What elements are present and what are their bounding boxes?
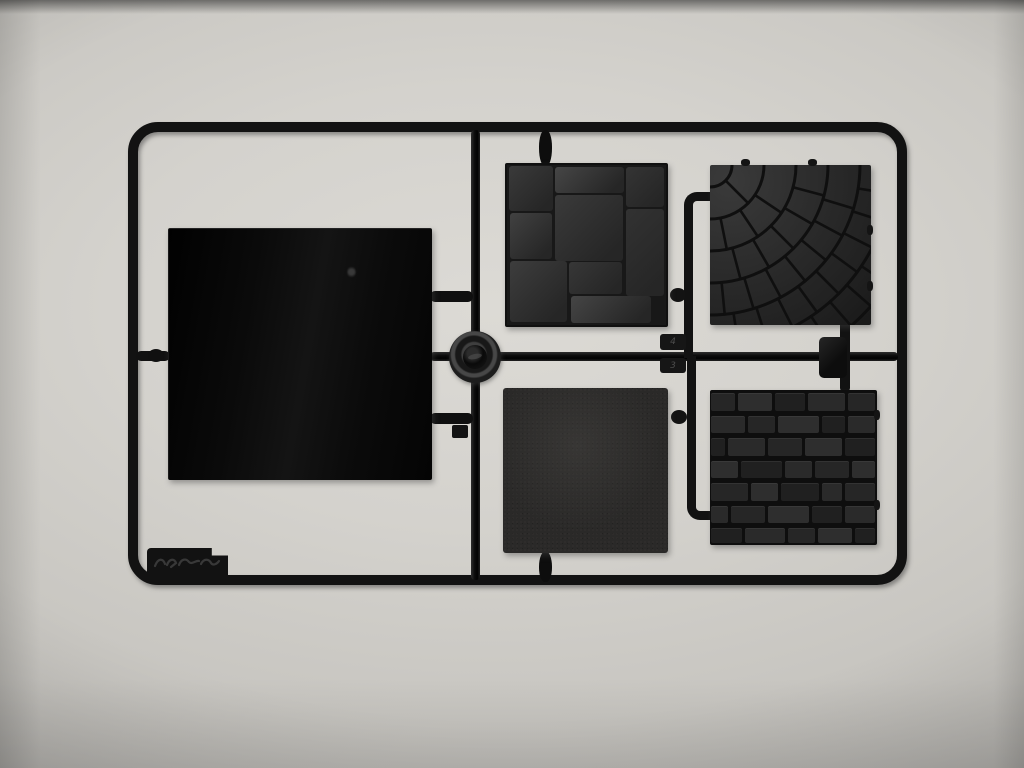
photo-background: 4 3 bbox=[0, 0, 1024, 768]
brick bbox=[711, 483, 748, 500]
brick bbox=[738, 393, 772, 410]
runner-small-tab bbox=[452, 425, 468, 438]
brick bbox=[711, 438, 725, 455]
flagstone-stone bbox=[509, 166, 553, 210]
tile-brick-wall bbox=[710, 390, 877, 545]
gate-left-bulge bbox=[148, 349, 164, 362]
brick bbox=[778, 416, 818, 432]
sprue-nub bbox=[867, 225, 873, 235]
brick bbox=[751, 483, 778, 500]
sprue-nub bbox=[808, 159, 817, 166]
gate-plain-tile-to-bottom-frame bbox=[539, 551, 552, 582]
brick bbox=[845, 506, 875, 522]
runner-knob-lower bbox=[671, 410, 687, 424]
cobblestone-pattern bbox=[710, 165, 871, 325]
brick bbox=[768, 438, 802, 455]
runner-right-connector-block bbox=[819, 337, 847, 378]
brick bbox=[852, 461, 876, 477]
brick bbox=[848, 393, 875, 410]
brick bbox=[768, 506, 808, 522]
tile-large-blank bbox=[168, 228, 432, 480]
brick bbox=[845, 438, 875, 455]
brick bbox=[812, 506, 842, 522]
brick bbox=[711, 393, 735, 410]
sprue-nub bbox=[741, 159, 750, 166]
brick bbox=[805, 438, 842, 455]
gate-top-frame-to-flagstone-tile bbox=[539, 130, 552, 167]
tile-flagstone bbox=[505, 163, 668, 327]
brick bbox=[741, 461, 781, 477]
flagstone-stone bbox=[555, 167, 624, 193]
brick bbox=[731, 506, 765, 522]
tile-cobblestone-fan bbox=[710, 165, 871, 325]
brick bbox=[818, 528, 852, 543]
mold-mark bbox=[347, 266, 356, 278]
gate-large-tile-upper bbox=[430, 291, 473, 302]
sprue-nub bbox=[874, 410, 880, 420]
sprue-hub-core bbox=[463, 345, 487, 369]
brick bbox=[845, 483, 875, 500]
sprue-nub bbox=[867, 281, 873, 291]
gate-large-tile-lower bbox=[430, 413, 473, 424]
brick bbox=[815, 461, 849, 477]
brick bbox=[711, 506, 728, 522]
sprue-nub bbox=[874, 500, 880, 510]
brick bbox=[788, 528, 815, 543]
brick bbox=[822, 483, 842, 500]
tile-plain-textured bbox=[503, 388, 668, 553]
brick bbox=[711, 416, 745, 432]
brick bbox=[822, 416, 846, 432]
brick bbox=[745, 528, 785, 543]
part-number-tab-4: 4 bbox=[660, 334, 686, 350]
brick bbox=[808, 393, 845, 410]
brick bbox=[728, 438, 765, 455]
brick bbox=[748, 416, 775, 432]
flagstone-stone bbox=[569, 262, 622, 294]
flagstone-stone bbox=[571, 296, 651, 323]
brick bbox=[785, 461, 812, 477]
flagstone-stone bbox=[626, 167, 663, 208]
brick bbox=[855, 528, 875, 543]
brick bbox=[711, 528, 741, 543]
flagstone-stone bbox=[510, 261, 567, 322]
flagstone-stone bbox=[555, 195, 623, 261]
runner-hook-upper bbox=[684, 192, 712, 358]
flagstone-stone bbox=[510, 213, 553, 259]
flagstone-stone bbox=[626, 209, 663, 295]
brick bbox=[775, 393, 805, 410]
brick bbox=[848, 416, 875, 432]
brick bbox=[711, 461, 738, 477]
runner-knob-upper bbox=[670, 288, 686, 302]
brick bbox=[781, 483, 818, 500]
part-number-tab-3: 3 bbox=[660, 358, 686, 373]
runner-hook-lower bbox=[687, 356, 712, 520]
